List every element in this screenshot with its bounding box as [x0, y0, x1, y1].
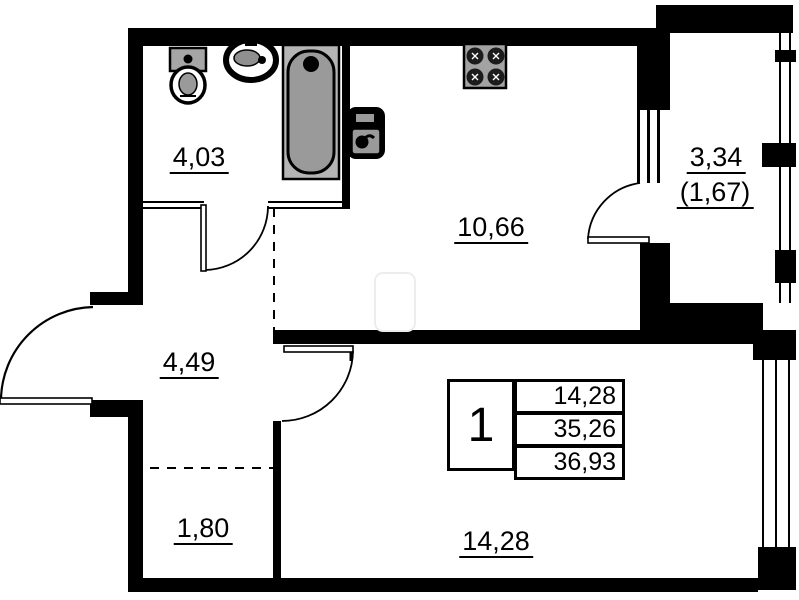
wardrobe-area-label: 1,80: [174, 514, 233, 545]
bathroom-door: [201, 205, 268, 271]
balcony-area-label: 3,34: [687, 143, 746, 174]
wall-bathroom-bottom-left: [143, 201, 204, 209]
wall-left-lower: [128, 400, 143, 592]
wall-entrance-jamb-top: [90, 292, 143, 305]
wall-balcony-hatched: [637, 110, 667, 183]
zone-divider-vertical-dashed: [273, 208, 275, 330]
wall-bathtub-partition: [342, 43, 350, 207]
balcony-window: [779, 33, 791, 303]
stove: [464, 44, 506, 88]
kitchen-area-label: 10,66: [454, 213, 528, 244]
zone-divider-horizontal-dashed: [150, 467, 274, 469]
wall-livingroom-window-block-top: [753, 330, 796, 360]
toilet: [170, 48, 206, 103]
watermark: [374, 272, 416, 332]
wall-bottom: [128, 578, 758, 592]
living-room-door: [282, 346, 353, 421]
living-room-window: [762, 360, 790, 547]
wall-top-main: [128, 28, 656, 46]
legend-areas: 14,28 35,26 36,93: [514, 379, 625, 471]
bathroom-area-label: 4,03: [170, 143, 229, 174]
legend-total-area: 36,93: [514, 445, 625, 480]
washbasin: [226, 40, 276, 80]
legend-room-count: 1: [447, 379, 515, 471]
balcony-door: [588, 183, 649, 243]
wall-livingroom-window-block-bottom: [758, 547, 796, 590]
wall-balcony-top: [656, 5, 793, 33]
wall-balcony-bottom: [650, 303, 763, 333]
living-room-area-label: 14,28: [459, 527, 533, 558]
wall-bathroom-bottom-right: [268, 201, 350, 209]
apartment-legend-table: 1 14,28 35,26 36,93: [447, 379, 625, 471]
wall-left-upper: [128, 28, 143, 305]
legend-apartment-area: 35,26: [514, 412, 625, 447]
bathtub: [283, 45, 339, 179]
entrance-door: [0, 307, 93, 404]
wall-balcony-pier-upper: [637, 33, 670, 110]
hallway-area-label: 4,49: [160, 348, 219, 379]
kitchen-sink: [347, 107, 385, 159]
balcony-reduced-area-label: (1,67): [677, 178, 754, 209]
floor-plan: 4,03 10,66 3,34 (1,67) 4,49 1,80 14,28 1…: [0, 0, 799, 600]
living-room-window-midline: [775, 360, 777, 547]
legend-living-area: 14,28: [514, 379, 625, 414]
wall-wardrobe-partition: [273, 421, 281, 578]
